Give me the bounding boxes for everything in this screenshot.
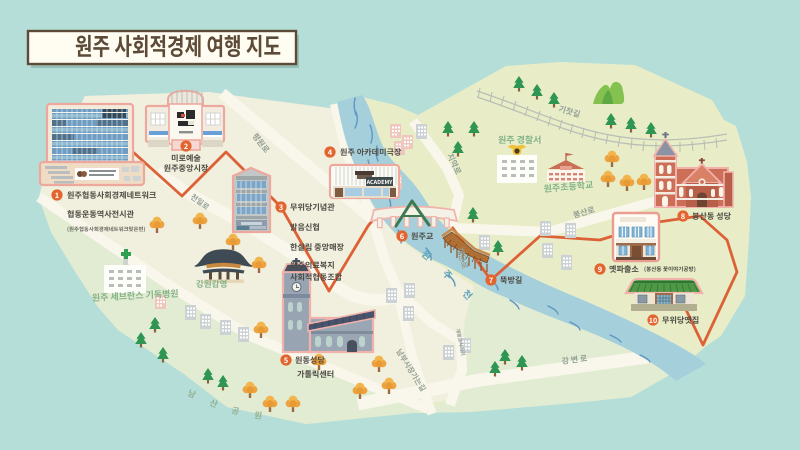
svg-text:협동운동역사전시관: 협동운동역사전시관 — [67, 209, 135, 220]
svg-text:원주 경찰서: 원주 경찰서 — [498, 133, 541, 146]
svg-text:한살림 중앙매장: 한살림 중앙매장 — [290, 242, 345, 253]
svg-text:원주 사회적경제 여행 지도: 원주 사회적경제 여행 지도 — [75, 27, 281, 62]
svg-text:옛파출소: 옛파출소 — [609, 264, 639, 275]
svg-text:5: 5 — [284, 355, 289, 366]
svg-text:사회적협동조합: 사회적협동조합 — [290, 272, 343, 283]
svg-text:6: 6 — [400, 231, 405, 242]
svg-text:무위당기념관: 무위당기념관 — [290, 202, 335, 213]
svg-text:1: 1 — [55, 190, 59, 201]
svg-text:원주교: 원주교 — [411, 231, 434, 242]
svg-text:원주협동사회경제네트워크: 원주협동사회경제네트워크 — [67, 190, 157, 201]
svg-text:(원주협동사회경제네트워크맞은편): (원주협동사회경제네트워크맞은편) — [67, 225, 145, 233]
svg-text:무위당옛집: 무위당옛집 — [662, 315, 699, 326]
svg-text:(봉산동 꽃이야기공방): (봉산동 꽃이야기공방) — [644, 265, 696, 273]
svg-text:봉산동 성당: 봉산동 성당 — [692, 211, 732, 222]
svg-text:ACADEMY: ACADEMY — [366, 178, 394, 186]
svg-text:가톨릭센터: 가톨릭센터 — [297, 369, 334, 380]
svg-text:8: 8 — [681, 211, 686, 222]
svg-text:9: 9 — [598, 264, 603, 275]
svg-text:7: 7 — [489, 275, 494, 286]
svg-text:원동성당: 원동성당 — [295, 355, 325, 366]
svg-text:원: 원 — [254, 409, 263, 422]
svg-text:밝음신협: 밝음신협 — [290, 222, 320, 233]
svg-text:2: 2 — [184, 141, 189, 152]
svg-text:원주 아카데미극장: 원주 아카데미극장 — [340, 147, 402, 158]
svg-text:10: 10 — [649, 316, 657, 326]
svg-text:4: 4 — [328, 147, 333, 158]
svg-text:원주중앙시장: 원주중앙시장 — [164, 163, 209, 174]
svg-text:강원감영: 강원감영 — [196, 278, 227, 290]
svg-text:원주의료복지: 원주의료복지 — [290, 260, 335, 271]
svg-text:3: 3 — [279, 202, 283, 213]
svg-text:뚝방길: 뚝방길 — [500, 275, 522, 286]
